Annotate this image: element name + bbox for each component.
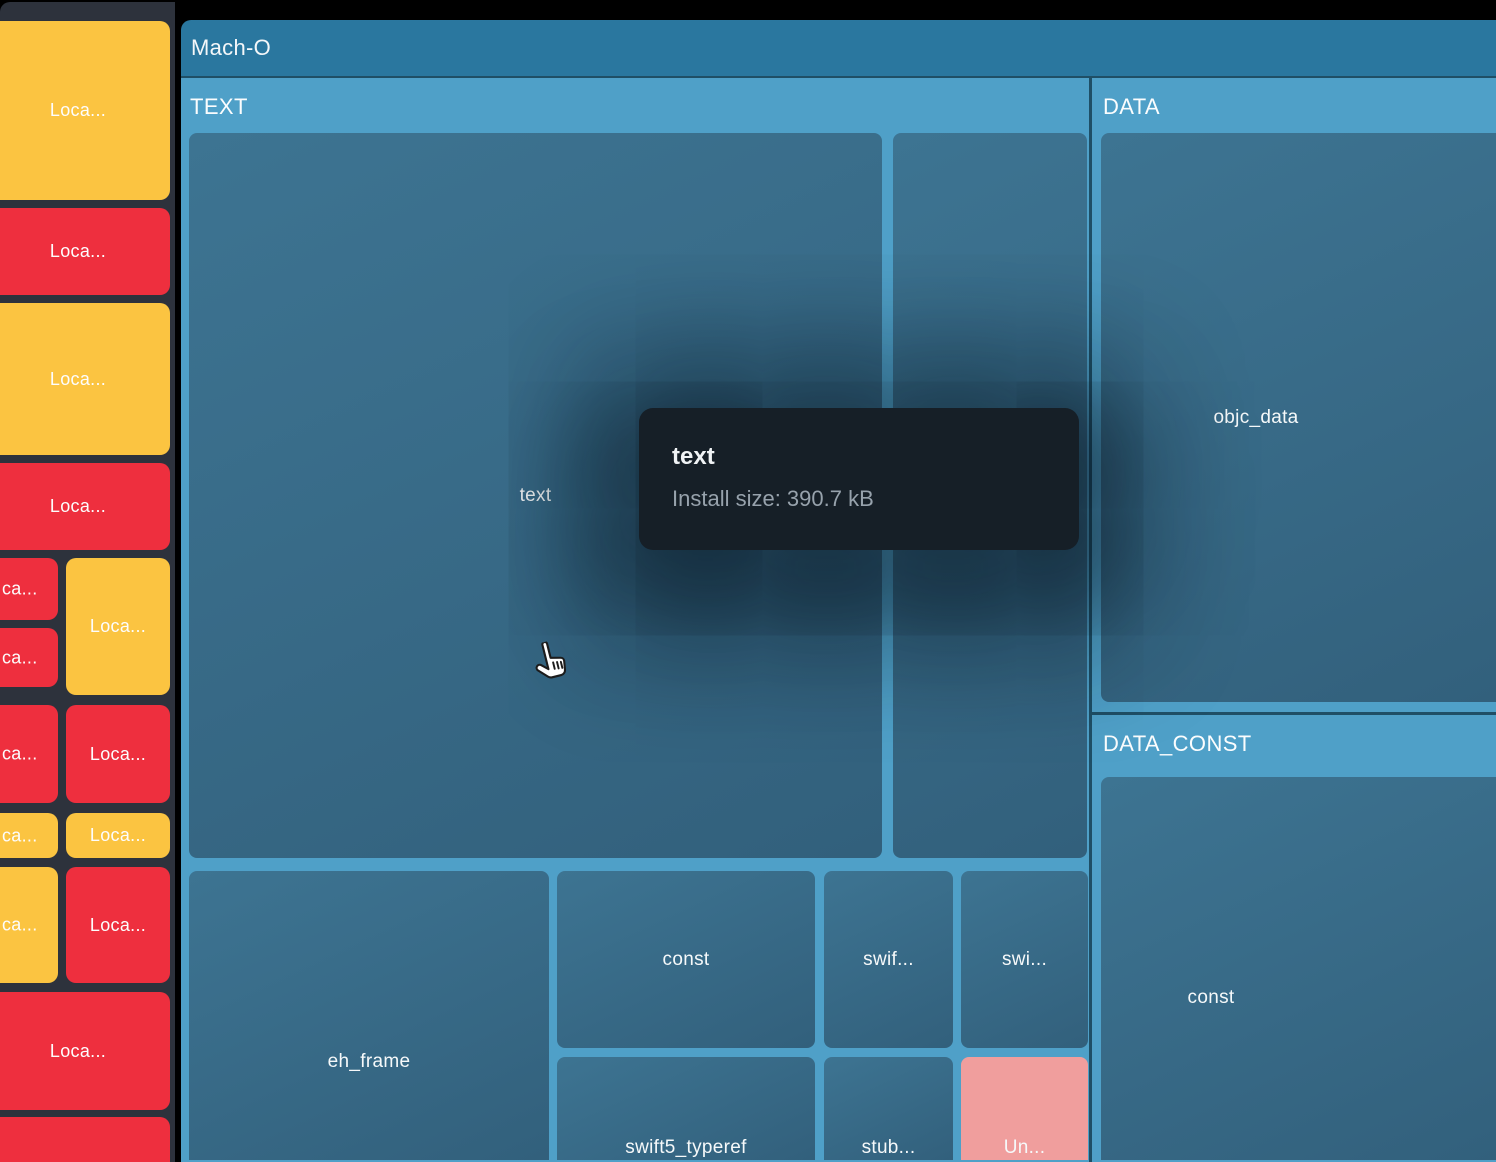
treemap-block-eh-frame[interactable]: eh_frame	[189, 871, 549, 1160]
treemap-block-stub[interactable]: stub...	[824, 1057, 953, 1160]
sidebar-panel: Loca... Loca... Loca... Loca... ca... ca…	[0, 2, 175, 1162]
treemap-block-objc-data[interactable]: objc_data	[1101, 133, 1496, 702]
section-label-data[interactable]: DATA	[1103, 92, 1160, 122]
sidebar-block-label: ca...	[2, 647, 38, 668]
sidebar-block-label: Loca...	[90, 825, 146, 846]
sidebar-block-label: Loca...	[50, 369, 106, 390]
treemap-block-const-data[interactable]: const	[1101, 777, 1496, 1160]
block-label: swi...	[1002, 949, 1047, 971]
sidebar-block[interactable]: Loca...	[66, 705, 170, 803]
treemap-section-data-const: DATA_CONST const	[1092, 715, 1496, 1162]
sidebar-block[interactable]: ca...	[0, 705, 58, 803]
sidebar-block[interactable]	[0, 1117, 170, 1162]
sidebar-block-label: ca...	[2, 744, 38, 765]
sidebar-block[interactable]: ca...	[0, 628, 58, 687]
block-label: Un...	[961, 1137, 1088, 1159]
block-label: stub...	[824, 1137, 953, 1159]
tooltip-install-size: Install size: 390.7 kB	[672, 485, 1046, 513]
sidebar-block-label: Loca...	[90, 915, 146, 936]
treemap-block-un[interactable]: Un...	[961, 1057, 1088, 1160]
sidebar-block[interactable]: ca...	[0, 867, 58, 983]
treemap-section-text: TEXT text eh_frame const swif... swi... …	[181, 78, 1089, 1162]
treemap-root-header[interactable]: Mach-O	[181, 20, 1496, 76]
sidebar-block[interactable]: ca...	[0, 813, 58, 858]
block-label: swif...	[863, 949, 914, 971]
app-window: Loca... Loca... Loca... Loca... ca... ca…	[0, 0, 1496, 1162]
section-label-text[interactable]: TEXT	[190, 92, 248, 122]
block-label: objc_data	[1213, 407, 1298, 429]
sidebar-block-label: ca...	[2, 915, 38, 936]
treemap-block-swif[interactable]: swif...	[824, 871, 953, 1048]
sidebar-block-label: ca...	[2, 825, 38, 846]
sidebar-block-label: ca...	[2, 579, 38, 600]
treemap-block-swift5-typeref[interactable]: swift5_typeref	[557, 1057, 815, 1160]
treemap-block-const[interactable]: const	[557, 871, 815, 1048]
sidebar-block-label: Loca...	[50, 100, 106, 121]
sidebar-block[interactable]: Loca...	[0, 463, 170, 550]
sidebar-block-label: Loca...	[50, 496, 106, 517]
sidebar-block[interactable]: Loca...	[66, 558, 170, 695]
treemap-root-label: Mach-O	[191, 35, 271, 61]
sidebar-block[interactable]: Loca...	[0, 21, 170, 200]
sidebar-block[interactable]: Loca...	[66, 813, 170, 858]
sidebar-block-label: Loca...	[90, 744, 146, 765]
treemap-block-swi[interactable]: swi...	[961, 871, 1088, 1048]
sidebar-block-label: Loca...	[50, 1041, 106, 1062]
sidebar-block[interactable]: Loca...	[66, 867, 170, 983]
hover-tooltip: text Install size: 390.7 kB	[639, 408, 1079, 550]
block-label: const	[1101, 987, 1496, 1009]
block-label: const	[663, 949, 710, 971]
sidebar-block[interactable]: Loca...	[0, 208, 170, 295]
sidebar-block-label: Loca...	[90, 616, 146, 637]
sidebar-block[interactable]: ca...	[0, 558, 58, 620]
sidebar-block[interactable]: Loca...	[0, 303, 170, 455]
block-label: eh_frame	[189, 1051, 549, 1073]
tooltip-title: text	[672, 442, 1046, 472]
section-label-data-const[interactable]: DATA_CONST	[1103, 729, 1252, 759]
block-label: text	[520, 485, 552, 507]
treemap-section-data: DATA objc_data	[1092, 78, 1496, 712]
sidebar-block[interactable]: Loca...	[0, 992, 170, 1110]
sidebar-block-label: Loca...	[50, 241, 106, 262]
block-label: swift5_typeref	[557, 1137, 815, 1159]
